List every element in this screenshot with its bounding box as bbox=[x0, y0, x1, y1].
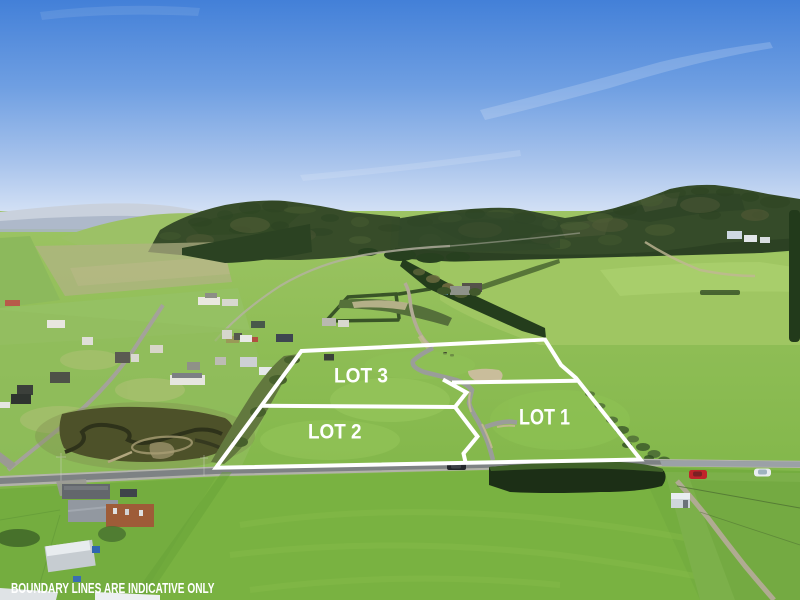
svg-text:LOT 2: LOT 2 bbox=[308, 420, 362, 443]
svg-text:LOT 1: LOT 1 bbox=[519, 404, 570, 429]
svg-text:BOUNDARY LINES ARE INDICATIVE: BOUNDARY LINES ARE INDICATIVE ONLY bbox=[11, 581, 215, 597]
svg-text:LOT 3: LOT 3 bbox=[334, 364, 388, 387]
